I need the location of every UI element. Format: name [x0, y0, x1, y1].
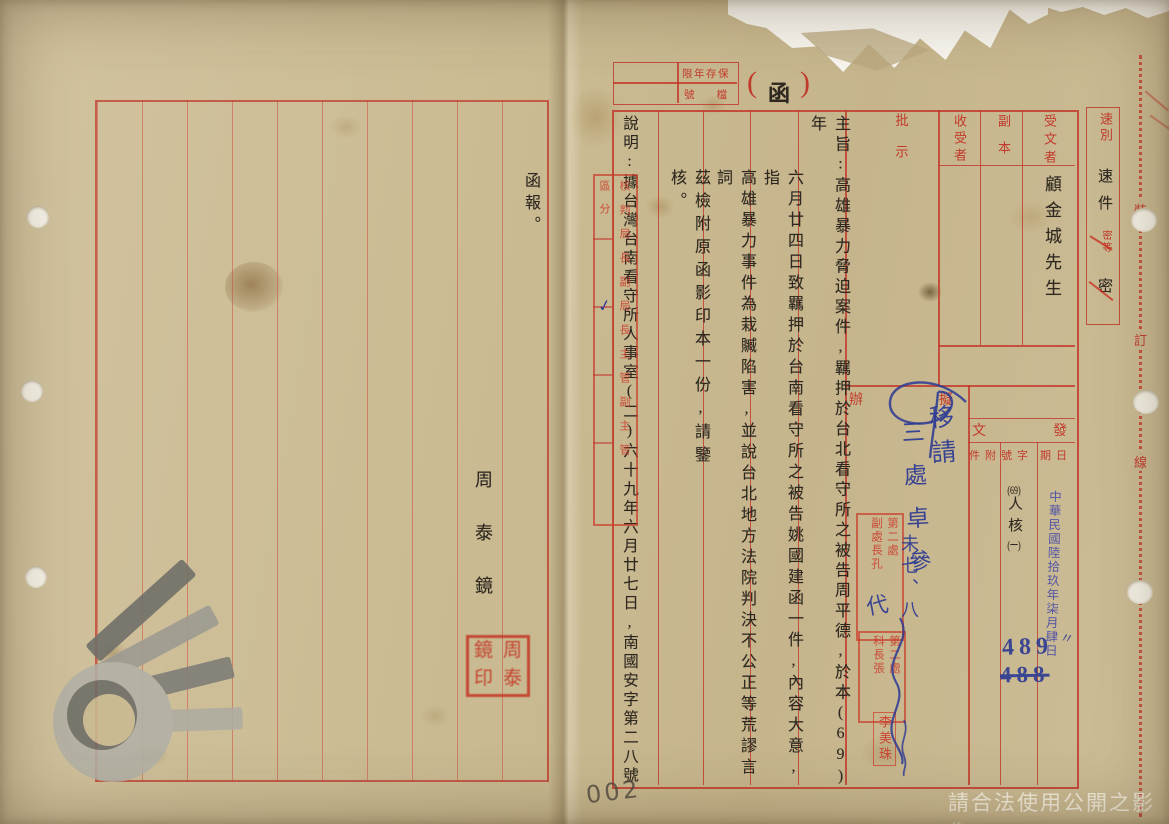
subject-column-4: 茲檢附原函影印本一份,請鑒核。 [664, 169, 712, 509]
pen-scratch [1145, 91, 1169, 111]
seal-char: 印 [469, 666, 498, 694]
pencil-page-number: 002 [584, 775, 642, 809]
attachment-label: 件附 [969, 447, 1001, 463]
seal-char: 鏡 [469, 638, 498, 666]
rule-line [968, 418, 1075, 419]
opening-text: 函報。 [518, 172, 542, 238]
dispatch-number: (69)人核(一) [1004, 484, 1025, 551]
retention-label: 限年存保 [682, 66, 730, 81]
binding-line [1139, 55, 1142, 817]
rule-line [593, 442, 612, 444]
date-label: 期日 [1040, 447, 1072, 463]
seal-char: 泰 [498, 666, 527, 694]
rule-line [613, 174, 615, 522]
remark-label: 批示 [890, 113, 910, 176]
rule-line [658, 110, 659, 785]
document-scan: 函報。 周泰鏡 鏡 周 印 泰 限年存保 號檔 ( 函 ) [0, 0, 1169, 824]
dispatch-number-word: 人核 [1006, 496, 1022, 539]
dispatch-label-left: 文 [972, 420, 986, 440]
rule-line [1000, 442, 1001, 785]
ink-date-squiggle [890, 716, 916, 778]
usage-watermark: 請合法使用公開之影像 [948, 787, 1169, 824]
subject-column-1: 主旨:高雄暴力脅迫案件,羈押於台北看守所之被告周平德,於本(69)年 [804, 115, 852, 790]
punch-hole [21, 380, 43, 402]
recipient-label: 受文者 [1040, 114, 1059, 168]
signer-seal: 鏡 周 印 泰 [466, 635, 530, 697]
pen-scratch [1150, 115, 1169, 131]
punch-hole [1133, 390, 1159, 414]
archive-logo-watermark [45, 600, 255, 800]
speed-value: 速件 [1094, 168, 1115, 222]
subject-column-3: 高雄暴力事件為栽贓陷害,並說台北地方法院判決不公正等荒謬言詞 [710, 169, 758, 787]
recipient-value: 顧金城先生 [1039, 175, 1064, 305]
binding-char: 訂 [1134, 330, 1147, 349]
serial-number-new: 489 [1002, 633, 1054, 662]
rule-line [613, 82, 737, 84]
doc-type-paren-close: ) [800, 66, 810, 100]
rule-line [938, 345, 1075, 347]
rule-line [938, 110, 940, 385]
speed-label: 速別 [1096, 112, 1115, 144]
page-fold [548, 0, 582, 824]
rule-line [593, 374, 612, 376]
serial-number-old: 488 [1000, 662, 1050, 689]
routing-stamp-body: 核判局長副局長主管副主管 [616, 180, 632, 468]
doc-type: 函 [768, 76, 790, 108]
logo-circle-core [83, 694, 135, 746]
file-number-label: 號檔 [684, 87, 749, 102]
seal-char: 周 [498, 638, 527, 666]
signer-name: 周泰鏡 [470, 470, 496, 629]
rule-line [1022, 110, 1023, 345]
rule-line [677, 62, 679, 103]
copy-label: 副本 [994, 114, 1013, 168]
dispatch-number-count: (一) [1007, 539, 1021, 551]
dispatch-label-right: 發 [1053, 420, 1067, 440]
subject-column-2: 六月廿四日致羈押於台南看守所之被告姚國建函一件,內容大意,指 [757, 169, 805, 787]
secrecy-value: 密 [1094, 278, 1115, 293]
rule-line [1037, 442, 1038, 785]
copy-to-label: 收受者 [950, 114, 969, 165]
rule-line [980, 110, 981, 345]
punch-hole [1131, 208, 1157, 232]
rule-line [968, 442, 1075, 443]
punch-hole [27, 206, 49, 228]
doc-type-paren-open: ( [747, 66, 757, 100]
routing-stamp-header: 區分 [596, 180, 612, 226]
dispatch-number-year: (69) [1007, 484, 1021, 496]
rule-line [593, 238, 612, 240]
binding-char: 線 [1134, 452, 1147, 471]
punch-hole [1127, 580, 1153, 604]
punch-hole [25, 566, 47, 588]
number-label: 號字 [1001, 447, 1033, 463]
